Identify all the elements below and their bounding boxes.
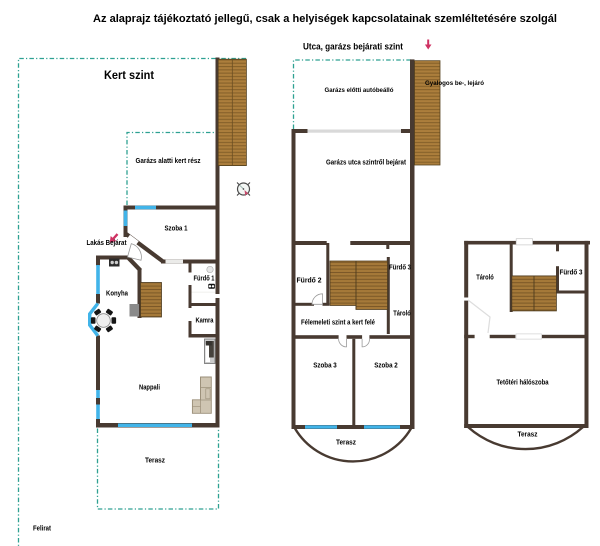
svg-text:Tetőtéri hálószoba: Tetőtéri hálószoba [497, 380, 549, 387]
svg-text:Garázs utca szintről bejárat: Garázs utca szintről bejárat [326, 160, 407, 167]
svg-text:Lakás Bejárat: Lakás Bejárat [87, 240, 128, 247]
svg-text:Tároló: Tároló [476, 275, 494, 282]
svg-text:Fürdő 2: Fürdő 2 [297, 278, 322, 285]
svg-text:Konyha: Konyha [106, 291, 128, 298]
svg-text:Terasz: Terasz [145, 458, 165, 465]
svg-text:Garázs alatti kert rész: Garázs alatti kert rész [136, 158, 201, 165]
svg-text:Fürdő 1: Fürdő 1 [194, 276, 215, 283]
svg-text:Terasz: Terasz [336, 440, 356, 447]
svg-text:Szoba 3: Szoba 3 [313, 363, 337, 370]
svg-text:Felirat: Felirat [33, 526, 52, 533]
svg-text:Kamra: Kamra [196, 318, 214, 325]
svg-text:Utca, garázs bejárati szint: Utca, garázs bejárati szint [303, 41, 404, 52]
svg-text:Terasz: Terasz [518, 432, 538, 439]
svg-text:Gyalogos be-, lejáró: Gyalogos be-, lejáró [425, 80, 484, 87]
svg-text:Szoba 1: Szoba 1 [165, 226, 188, 233]
svg-text:Az alaprajz tájékoztató jelleg: Az alaprajz tájékoztató jellegű, csak a … [93, 13, 557, 25]
svg-text:Kert szint: Kert szint [104, 68, 154, 82]
svg-text:Félemeleti szint a kert felé: Félemeleti szint a kert felé [301, 320, 375, 327]
svg-text:Nappali: Nappali [139, 385, 160, 392]
svg-text:Szoba 2: Szoba 2 [374, 363, 398, 370]
svg-text:Fürdő 3: Fürdő 3 [560, 270, 583, 277]
svg-text:Tároló: Tároló [393, 311, 411, 318]
svg-text:Fürdő 3: Fürdő 3 [389, 265, 411, 272]
svg-text:Garázs előtti autóbeálló: Garázs előtti autóbeálló [325, 87, 394, 94]
